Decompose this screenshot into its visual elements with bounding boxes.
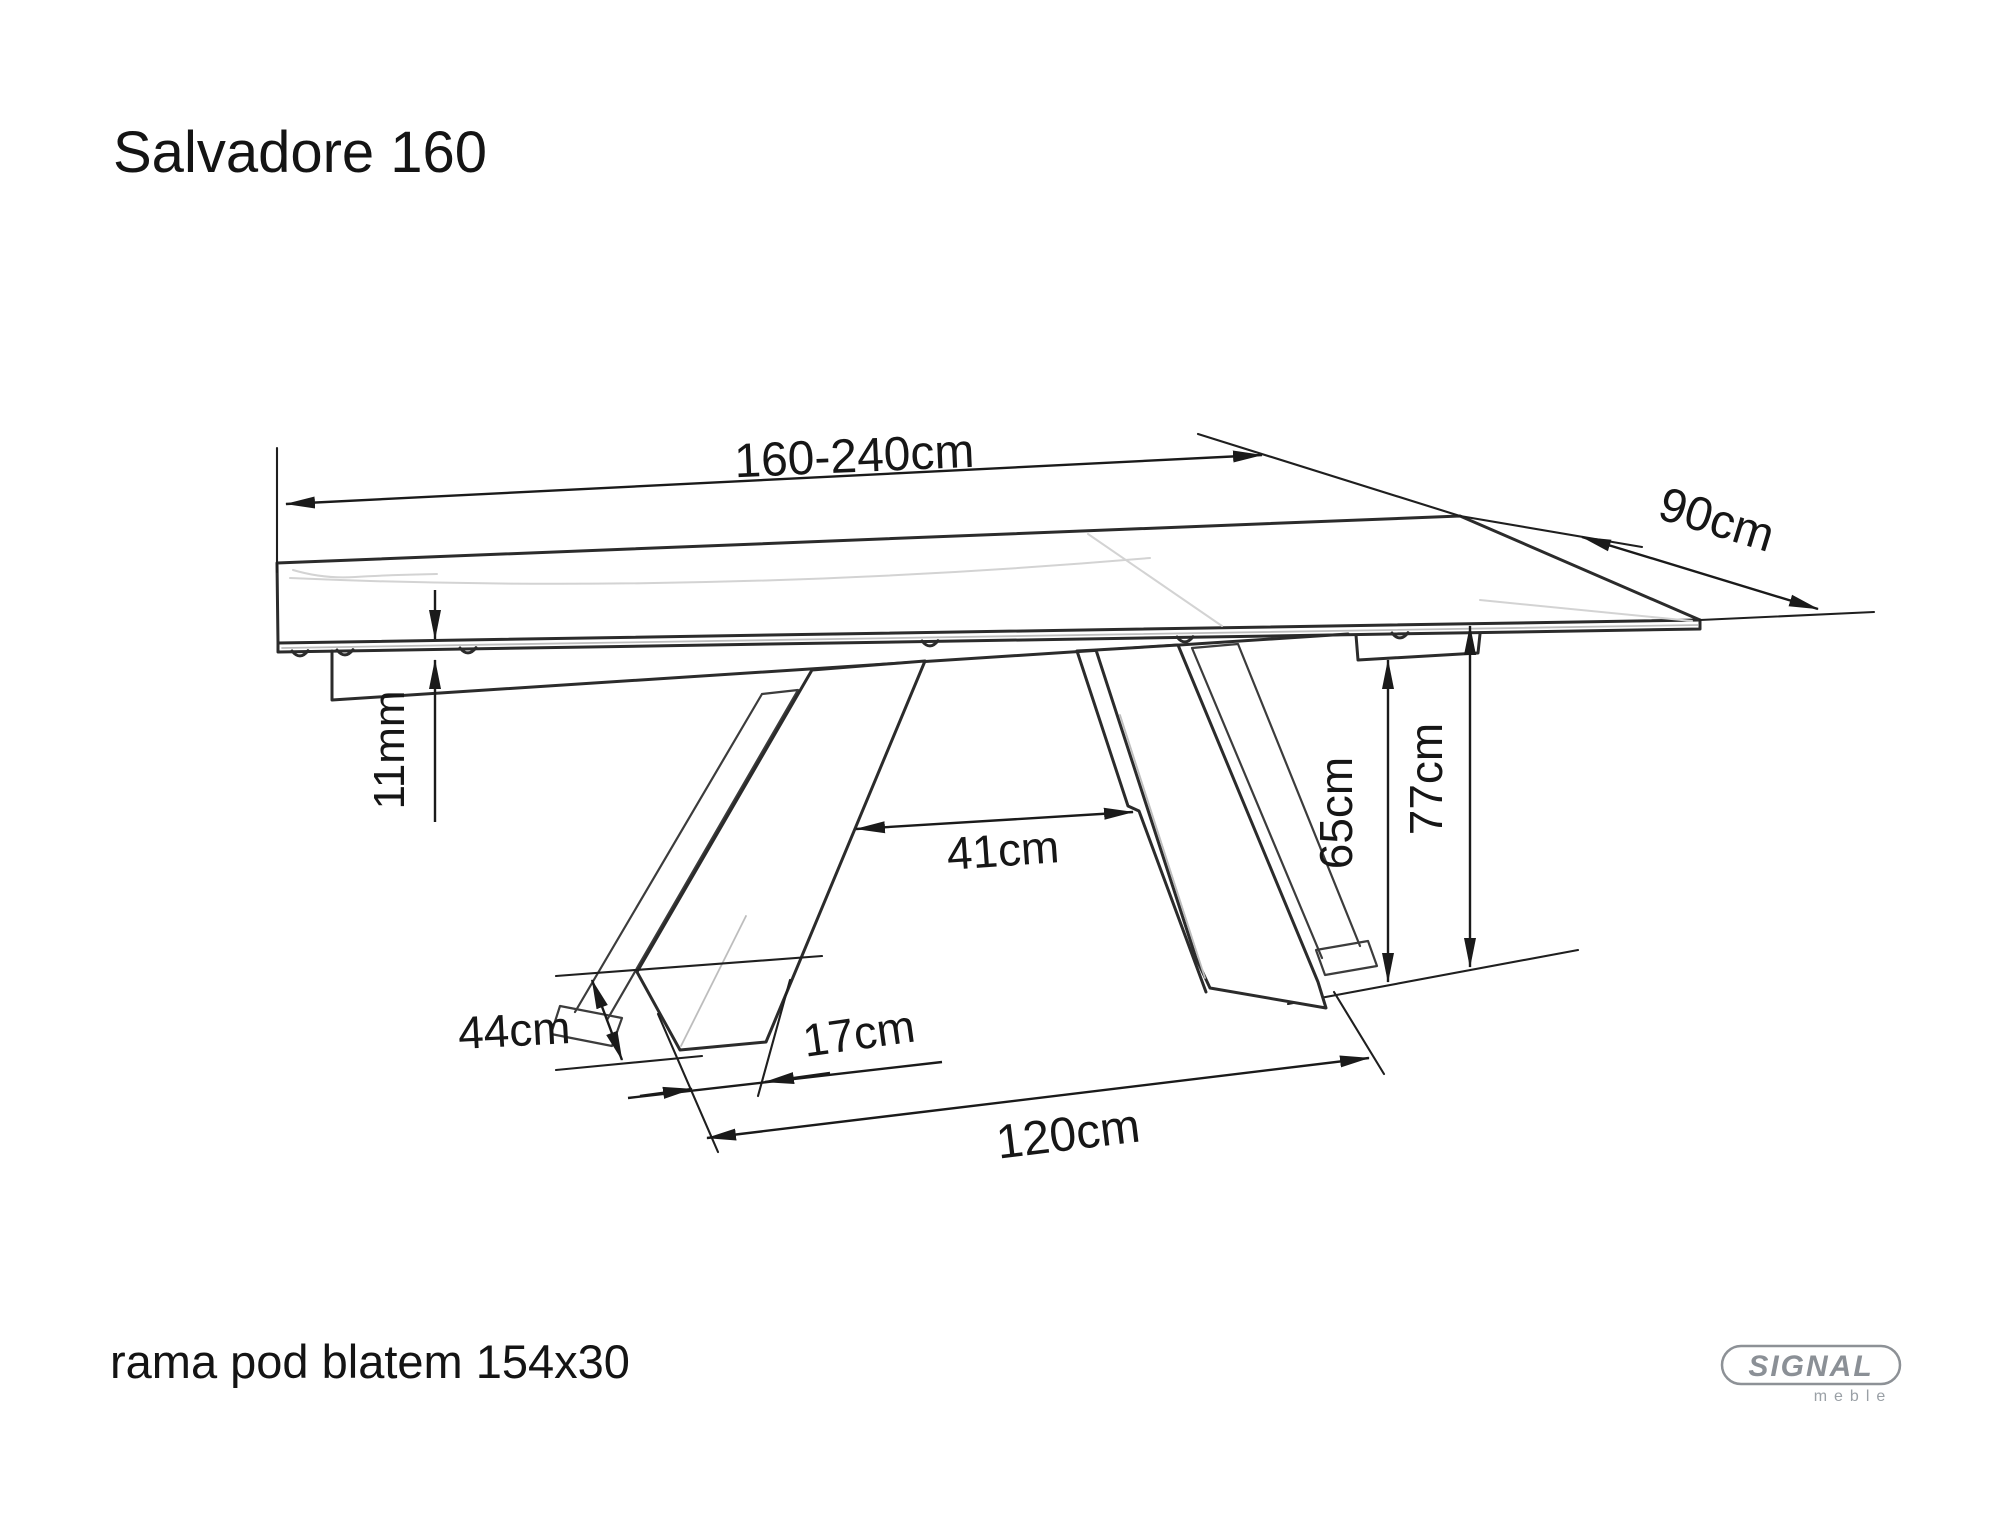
dim-clearance: 65cm bbox=[1310, 660, 1388, 982]
dim-label-base-span: 120cm bbox=[993, 1100, 1142, 1170]
dim-label-depth: 90cm bbox=[1653, 478, 1781, 563]
tabletop bbox=[277, 516, 1700, 656]
floor-line bbox=[1288, 950, 1578, 1004]
logo-brand-text: SIGNAL bbox=[1748, 1350, 1873, 1383]
dim-label-leg-gap: 41cm bbox=[945, 820, 1061, 880]
frame-right-bracket bbox=[1356, 634, 1480, 660]
front-right-leg bbox=[1096, 645, 1326, 1008]
dim-label-height: 77cm bbox=[1400, 723, 1452, 835]
technical-drawing-page: 160-240cm 90cm 11mm 41cm 65cm 77cm bbox=[0, 0, 2000, 1530]
signal-logo: SIGNAL meble bbox=[1722, 1346, 1900, 1405]
dim-leg-gap: 41cm bbox=[856, 812, 1133, 880]
extension-line bbox=[1700, 612, 1874, 620]
dimension-diagram-svg: 160-240cm 90cm 11mm 41cm 65cm 77cm bbox=[0, 0, 2000, 1530]
tabletop-surface bbox=[277, 516, 1700, 643]
dim-label-length: 160-240cm bbox=[733, 425, 975, 488]
dimension-line bbox=[592, 980, 622, 1060]
logo-sub-text: meble bbox=[1814, 1388, 1893, 1405]
dim-label-clearance: 65cm bbox=[1310, 757, 1362, 869]
extension-line bbox=[1198, 434, 1460, 516]
dim-label-foot-length: 44cm bbox=[457, 1001, 572, 1059]
table-drawing bbox=[277, 516, 1700, 1050]
dim-height: 77cm bbox=[1400, 626, 1470, 967]
dim-label-foot-width: 17cm bbox=[799, 1000, 918, 1067]
dimension-arrow bbox=[765, 1073, 830, 1082]
frame-note: rama pod blatem 154x30 bbox=[110, 1335, 630, 1388]
page-title: Salvadore 160 bbox=[113, 120, 487, 185]
dim-label-top-thickness: 11mm bbox=[365, 691, 414, 810]
back-right-foot bbox=[1316, 941, 1377, 975]
